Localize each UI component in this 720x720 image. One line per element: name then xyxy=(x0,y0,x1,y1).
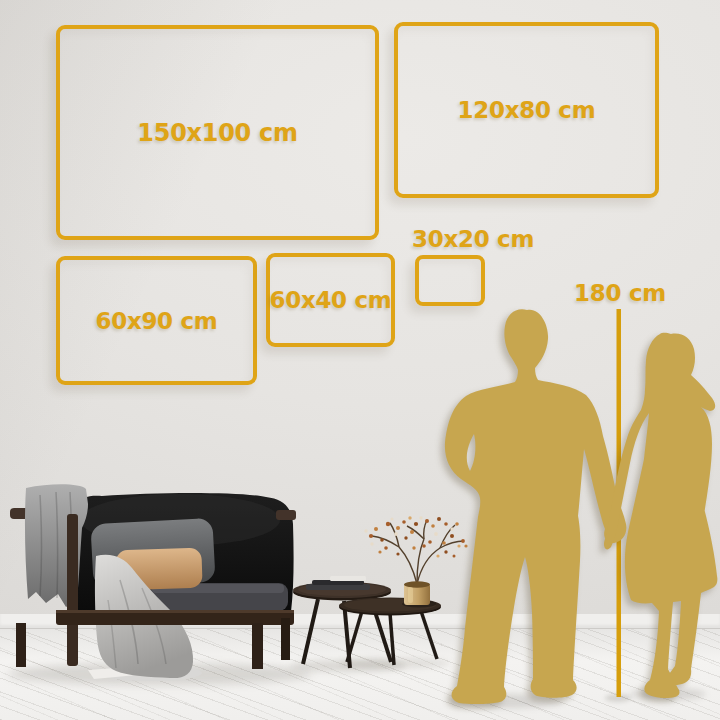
size-label-30x20: 30x20 cm xyxy=(412,226,534,252)
size-frame-60x40: 60x40 cm xyxy=(266,253,395,347)
size-frame-30x20 xyxy=(415,255,485,306)
size-label-150x100: 150x100 cm xyxy=(137,119,297,147)
height-reference-label: 180 cm xyxy=(568,280,672,306)
size-label-60x90: 60x90 cm xyxy=(95,308,217,334)
size-frame-120x80: 120x80 cm xyxy=(394,22,659,198)
size-label-120x80: 120x80 cm xyxy=(458,97,596,123)
baseboard xyxy=(0,614,720,629)
size-frame-150x100: 150x100 cm xyxy=(56,25,379,240)
wood-floor xyxy=(0,629,720,720)
size-guide-scene: 150x100 cm 120x80 cm 60x90 cm 60x40 cm 3… xyxy=(0,0,720,720)
size-label-60x40: 60x40 cm xyxy=(269,287,391,313)
size-frame-60x90: 60x90 cm xyxy=(56,256,257,385)
